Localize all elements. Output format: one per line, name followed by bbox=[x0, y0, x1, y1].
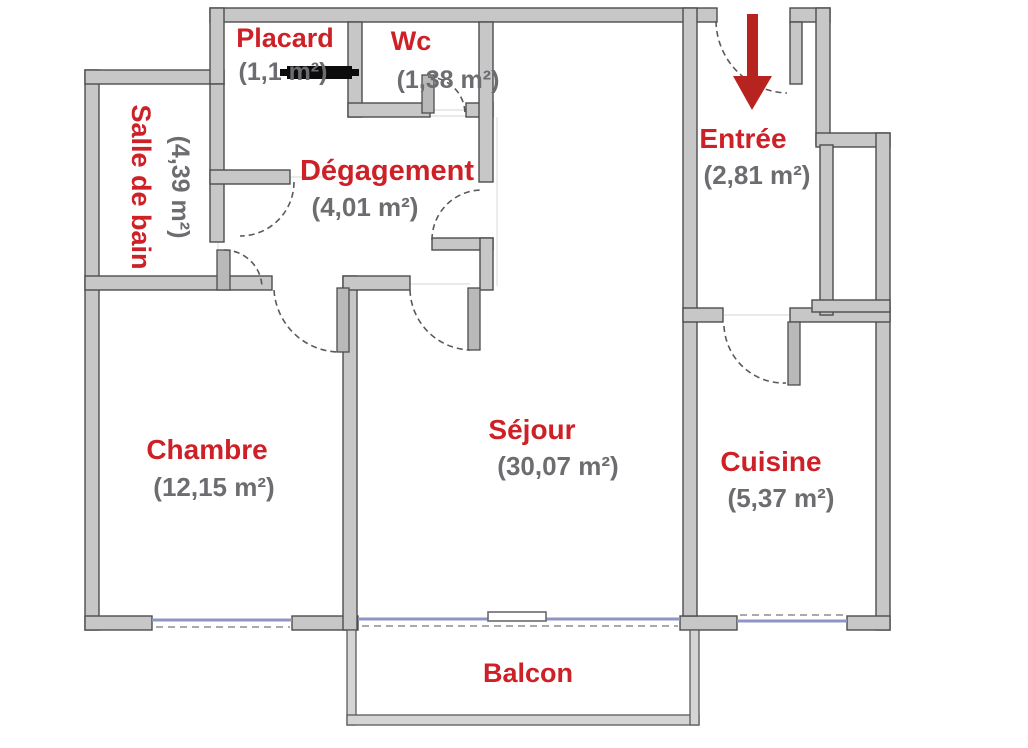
chambre-label: Chambre bbox=[146, 434, 267, 465]
floor-plan-canvas: Placard (1,1 m²) Wc (1,38 m²) Salle de b… bbox=[0, 0, 1028, 748]
wall-bottom bbox=[847, 616, 890, 630]
wall-shaft-left bbox=[820, 145, 833, 315]
balcony-wall-bottom bbox=[347, 715, 699, 725]
degagement-door-arc bbox=[432, 190, 481, 240]
salle-de-bain-area: (4,39 m²) bbox=[166, 136, 194, 239]
windows bbox=[152, 612, 847, 627]
walls bbox=[85, 8, 890, 630]
chambre-door-leaf bbox=[337, 288, 349, 352]
degagement-area: (4,01 m²) bbox=[312, 192, 419, 222]
wall-right-upper bbox=[816, 8, 830, 145]
entry-arrow-shaft bbox=[747, 14, 758, 78]
cuisine-door-arc bbox=[724, 326, 786, 383]
chambre-door-arc bbox=[274, 290, 341, 352]
wall-wc-bottom bbox=[348, 103, 430, 117]
degagement-label: Dégagement bbox=[300, 155, 474, 187]
wc-area: (1,38 m²) bbox=[397, 66, 500, 94]
wall-shaft-bottom bbox=[812, 300, 890, 312]
entry-arrow-head bbox=[733, 76, 772, 110]
wall-left-outer bbox=[85, 70, 99, 630]
cuisine-area: (5,37 m²) bbox=[728, 483, 835, 513]
entree-label: Entrée bbox=[699, 123, 786, 154]
entry-arrow-icon bbox=[733, 14, 772, 110]
wall-top bbox=[210, 8, 717, 22]
wall-chambre-top bbox=[85, 276, 272, 290]
wall-right-outer bbox=[876, 133, 890, 630]
sejour-door-leaf bbox=[468, 288, 480, 350]
door-leaves bbox=[217, 75, 800, 385]
balcon-label: Balcon bbox=[483, 658, 573, 688]
sejour-label: Séjour bbox=[488, 414, 575, 445]
placard-label: Placard bbox=[236, 23, 334, 53]
wall-wc-right bbox=[479, 22, 493, 182]
sejour-door-arc bbox=[410, 290, 470, 350]
chambre-area: (12,15 m²) bbox=[153, 472, 274, 502]
wall-bathroom-right bbox=[210, 84, 224, 242]
wall-entry-jamb bbox=[790, 22, 802, 84]
wall-entree-bottom-west bbox=[683, 308, 723, 322]
placard-area: (1,1 m²) bbox=[239, 58, 328, 86]
wall-placard-bottom bbox=[210, 170, 290, 184]
sejour-sliding-door bbox=[488, 612, 546, 621]
wall-nook-vertical bbox=[480, 238, 493, 290]
wall-degagement-south bbox=[343, 276, 410, 290]
sejour-area: (30,07 m²) bbox=[497, 451, 618, 481]
closet-door-bar-tick bbox=[352, 69, 359, 76]
salle-de-bain-label: Salle de bain bbox=[126, 104, 156, 269]
wall-bottom bbox=[680, 616, 737, 630]
wall-bottom bbox=[85, 616, 152, 630]
cuisine-label: Cuisine bbox=[720, 446, 821, 477]
balcony-wall-left bbox=[347, 630, 356, 725]
bathroom-door-leaf bbox=[217, 250, 230, 290]
balcony-wall-right bbox=[690, 630, 699, 725]
wall-placard-west bbox=[210, 8, 224, 84]
entree-area: (2,81 m²) bbox=[704, 160, 811, 190]
floor-plan-drawing: Placard (1,1 m²) Wc (1,38 m²) Salle de b… bbox=[0, 0, 1028, 748]
cuisine-door-leaf bbox=[788, 322, 800, 385]
wc-label: Wc bbox=[391, 26, 432, 56]
placard-door-arc bbox=[240, 182, 294, 236]
wall-bath-top bbox=[85, 70, 224, 84]
